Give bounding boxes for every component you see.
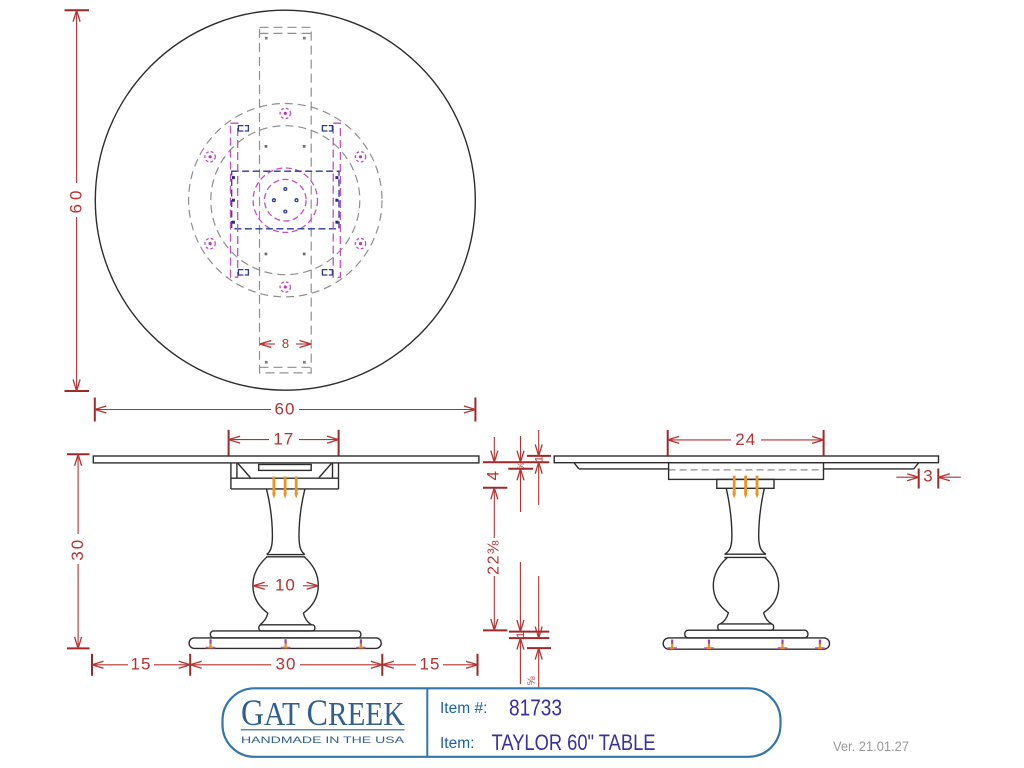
svg-text:30: 30 [276, 655, 297, 674]
svg-text:TAYLOR 60" TABLE: TAYLOR 60" TABLE [492, 730, 656, 755]
svg-text:1: 1 [533, 456, 545, 462]
svg-text:⅝: ⅝ [526, 676, 538, 686]
svg-text:HANDMADE IN THE USA: HANDMADE IN THE USA [241, 735, 405, 746]
svg-text:22⅜: 22⅜ [485, 539, 502, 575]
svg-text:15: 15 [131, 655, 152, 674]
svg-text:60: 60 [275, 399, 296, 418]
svg-text:3: 3 [923, 467, 933, 486]
svg-text:30: 30 [68, 538, 87, 561]
svg-text:17: 17 [273, 430, 294, 449]
svg-text:81733: 81733 [509, 695, 562, 721]
svg-text:4: 4 [484, 470, 503, 480]
svg-text:GAT CREEK: GAT CREEK [241, 693, 405, 734]
svg-text:Item #:: Item #: [440, 700, 487, 717]
svg-text:60: 60 [67, 187, 86, 214]
svg-text:24: 24 [735, 430, 756, 449]
svg-text:10: 10 [275, 576, 296, 595]
svg-text:8: 8 [282, 336, 289, 351]
svg-text:Item:: Item: [440, 735, 474, 752]
svg-text:⅝: ⅝ [516, 462, 526, 470]
svg-text:15: 15 [420, 655, 441, 674]
svg-text:1: 1 [515, 632, 527, 638]
svg-text:Ver. 21.01.27: Ver. 21.01.27 [833, 739, 909, 754]
